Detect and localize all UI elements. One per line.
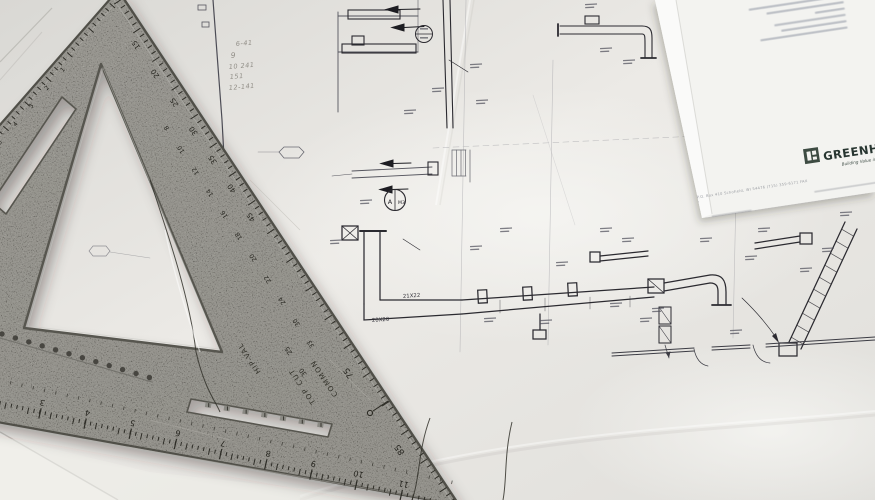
pencil-note: 9 (230, 51, 236, 60)
duct-size-label: 21X22 (403, 293, 421, 300)
scribe-notch (93, 359, 98, 364)
scribe-notch (120, 367, 125, 372)
scribe-notch (107, 363, 112, 368)
slot-notch (242, 409, 249, 415)
scribe-notch (80, 355, 85, 360)
scribe-notch (66, 351, 71, 356)
slot-notch (205, 402, 212, 408)
duct-size-label: 20X20 (372, 317, 390, 324)
slot-notch (298, 419, 305, 425)
slot-notch (261, 412, 268, 418)
logo-mark (803, 147, 820, 164)
photo-scene: A M3 (0, 0, 875, 500)
scribe-notch (133, 371, 138, 376)
slot-notch (317, 422, 324, 428)
scribe-notch (53, 347, 58, 352)
scribe-notch (26, 339, 31, 344)
callout-number: M3 (398, 200, 405, 206)
pencil-note: 6-41 (235, 39, 252, 48)
slot-notch (280, 415, 287, 421)
scribe-notch (40, 343, 45, 348)
callout-letter: A (388, 198, 393, 206)
pencil-note: 151 (229, 72, 244, 81)
logo-mark-inner (813, 156, 817, 160)
slot-notch (224, 405, 231, 411)
logo-mark-inner (812, 150, 817, 155)
scribe-notch (147, 375, 152, 380)
photo-blueprints-speed-square: A M3 (0, 0, 875, 500)
scribe-notch (13, 335, 18, 340)
